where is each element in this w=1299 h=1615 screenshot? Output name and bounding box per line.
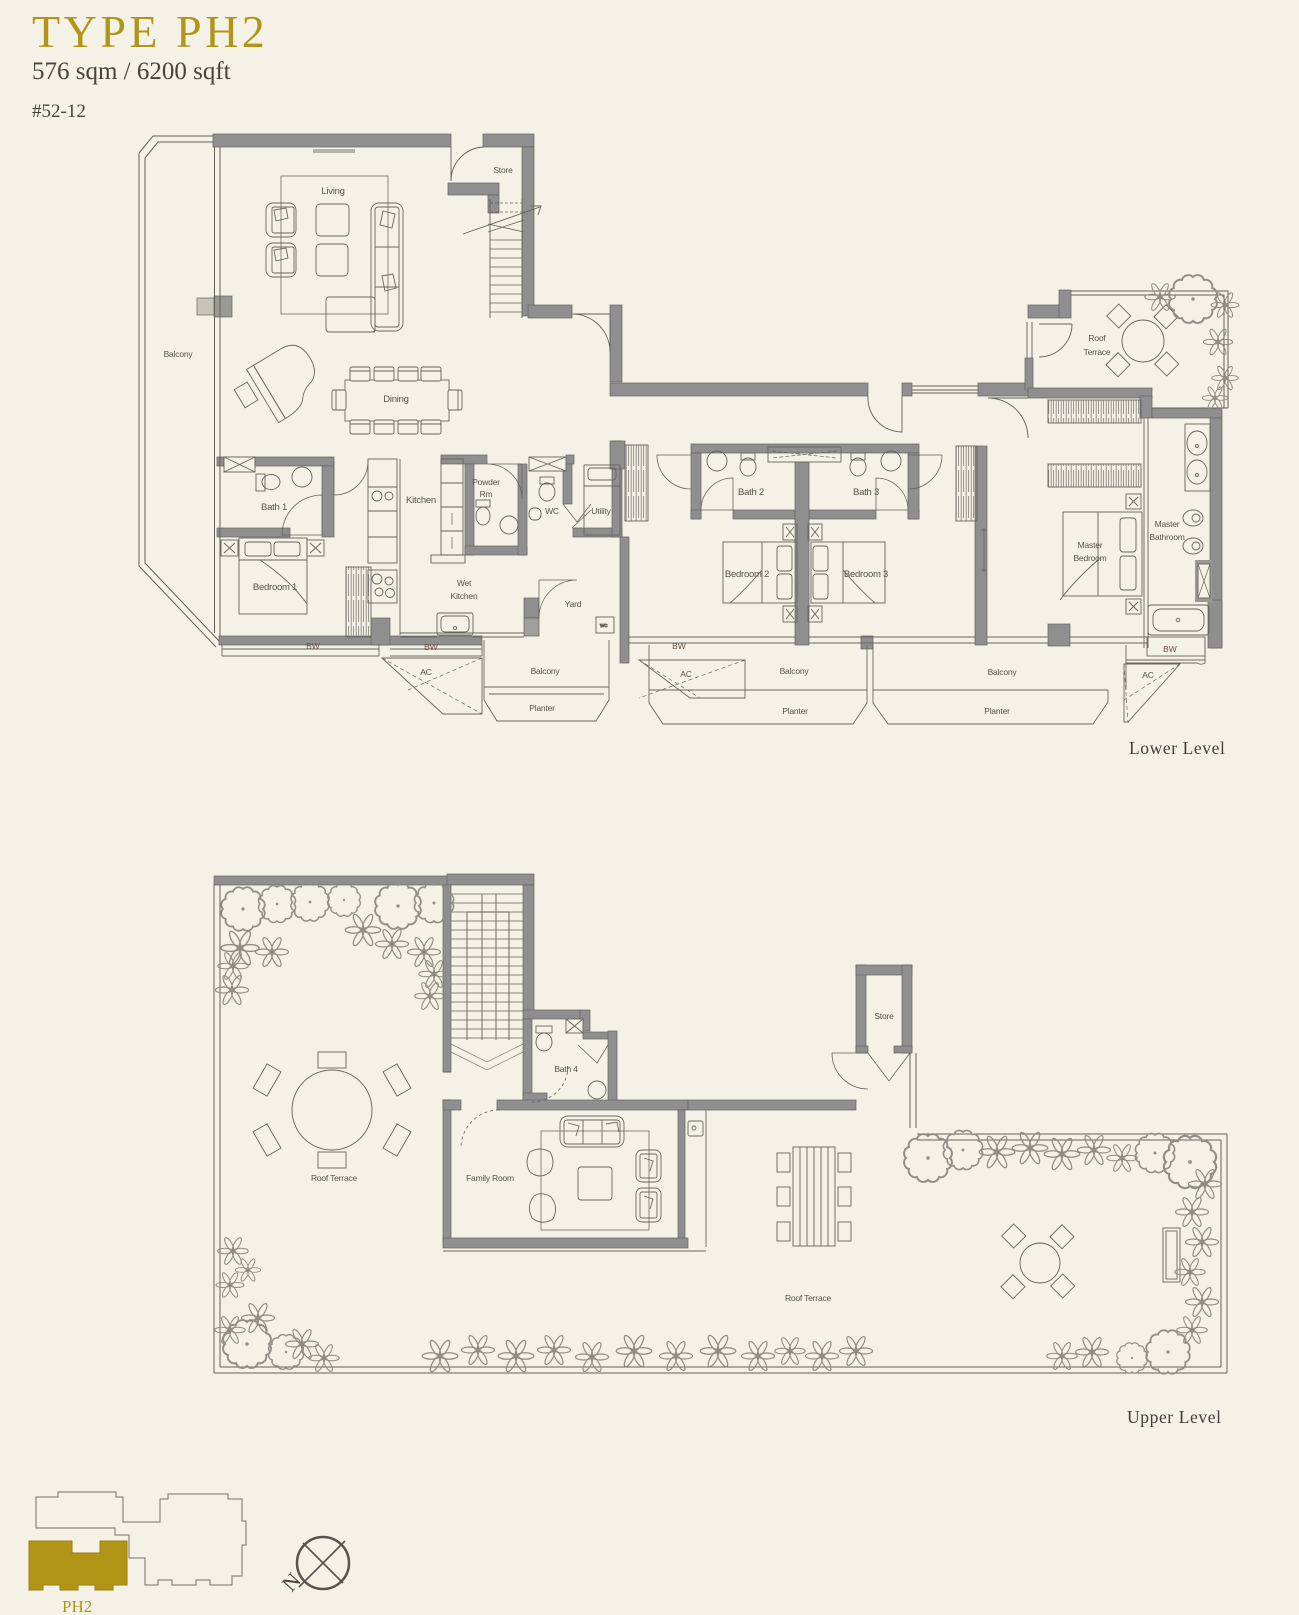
svg-text:Balcony: Balcony: [164, 349, 194, 359]
svg-text:Planter: Planter: [782, 706, 808, 716]
svg-text:BW: BW: [1163, 644, 1177, 654]
svg-text:Powder: Powder: [472, 477, 500, 487]
svg-text:AC: AC: [420, 667, 431, 677]
svg-text:Terrace: Terrace: [1084, 347, 1111, 357]
svg-text:Planter: Planter: [984, 706, 1010, 716]
svg-text:Upper Level: Upper Level: [1127, 1407, 1222, 1427]
svg-text:Bathroom: Bathroom: [1149, 532, 1184, 542]
svg-text:576 sqm / 6200 sqft: 576 sqm / 6200 sqft: [32, 58, 231, 85]
svg-text:Store: Store: [874, 1011, 894, 1021]
svg-text:Kitchen: Kitchen: [451, 591, 478, 601]
svg-text:Bedroom: Bedroom: [1073, 553, 1106, 563]
svg-text:Bath 4: Bath 4: [554, 1064, 578, 1074]
svg-text:BW: BW: [306, 641, 320, 651]
svg-text:Balcony: Balcony: [780, 666, 810, 676]
svg-text:BW: BW: [672, 641, 686, 651]
svg-text:Roof: Roof: [1088, 333, 1106, 343]
svg-text:Yard: Yard: [565, 599, 582, 609]
svg-text:Family Room: Family Room: [466, 1173, 514, 1183]
svg-text:Planter: Planter: [529, 703, 555, 713]
svg-text:AC: AC: [1142, 670, 1153, 680]
svg-text:Bath 2: Bath 2: [738, 487, 764, 498]
svg-text:BW: BW: [424, 642, 438, 652]
svg-text:Lower Level: Lower Level: [1129, 738, 1225, 758]
svg-text:Rm: Rm: [480, 489, 493, 499]
svg-text:Bedroom 1: Bedroom 1: [253, 582, 297, 593]
svg-text:Balcony: Balcony: [988, 667, 1018, 677]
svg-text:WC: WC: [600, 623, 608, 628]
svg-text:AC: AC: [680, 669, 691, 679]
svg-text:Balcony: Balcony: [531, 666, 561, 676]
svg-text:Bath 3: Bath 3: [853, 487, 879, 498]
svg-text:Dining: Dining: [383, 394, 408, 405]
svg-text:Utility: Utility: [591, 506, 611, 516]
svg-text:TYPE PH2: TYPE PH2: [32, 6, 268, 57]
svg-text:Roof Terrace: Roof Terrace: [311, 1173, 358, 1183]
svg-text:Bath 1: Bath 1: [261, 502, 287, 513]
svg-text:Master: Master: [1078, 540, 1103, 550]
svg-text:#52-12: #52-12: [32, 101, 86, 122]
svg-text:WC: WC: [545, 506, 559, 516]
svg-text:Kitchen: Kitchen: [406, 495, 436, 506]
svg-text:Roof Terrace: Roof Terrace: [785, 1293, 832, 1303]
svg-text:Wet: Wet: [457, 578, 472, 588]
svg-text:PH2: PH2: [62, 1597, 92, 1615]
svg-text:Bedroom 3: Bedroom 3: [844, 569, 888, 580]
svg-text:Bedroom 2: Bedroom 2: [725, 569, 769, 580]
svg-text:Store: Store: [493, 165, 513, 175]
svg-text:Living: Living: [321, 186, 344, 197]
svg-text:Master: Master: [1155, 519, 1180, 529]
